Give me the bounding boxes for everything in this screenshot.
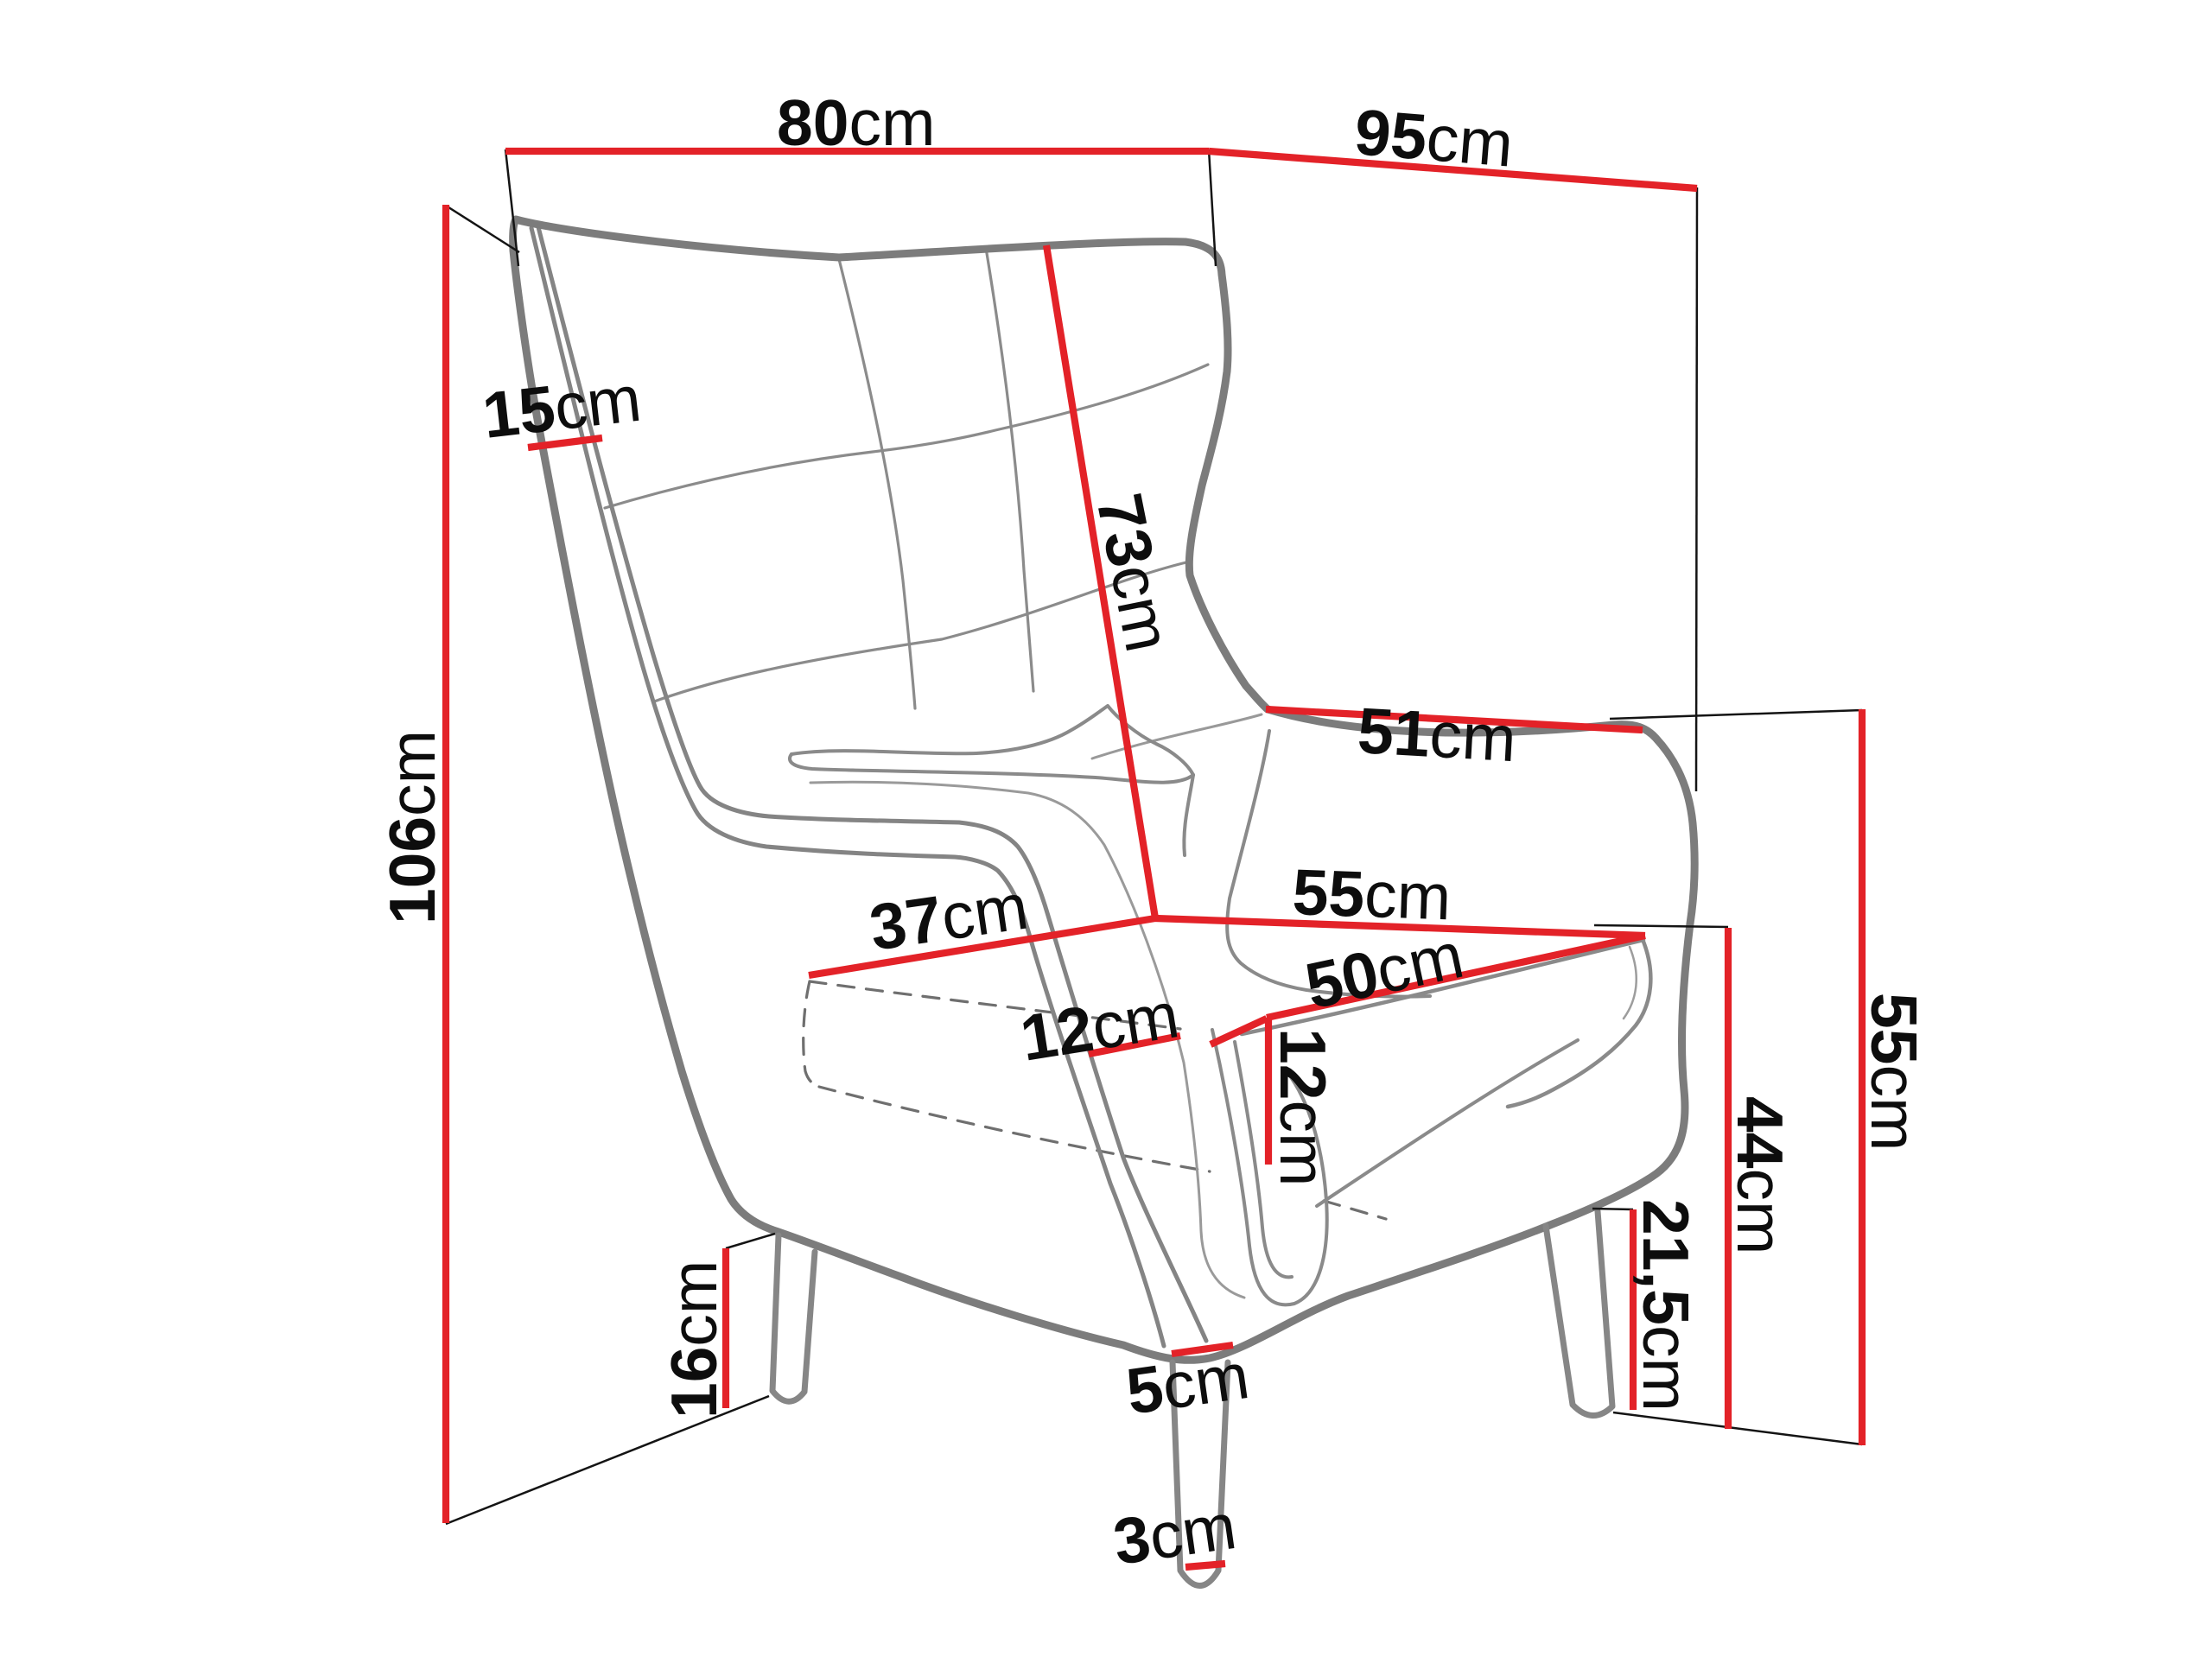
svg-text:95cm: 95cm (1352, 95, 1516, 180)
svg-text:80cm: 80cm (777, 86, 935, 159)
svg-text:12cm: 12cm (1267, 1028, 1339, 1186)
svg-text:106cm: 106cm (376, 730, 448, 924)
svg-text:51cm: 51cm (1356, 694, 1518, 775)
svg-text:55cm: 55cm (1291, 855, 1452, 933)
svg-text:16cm: 16cm (658, 1260, 730, 1419)
svg-text:55cm: 55cm (1858, 993, 1930, 1151)
svg-text:21,5cm: 21,5cm (1630, 1199, 1702, 1412)
svg-text:44cm: 44cm (1724, 1096, 1796, 1254)
